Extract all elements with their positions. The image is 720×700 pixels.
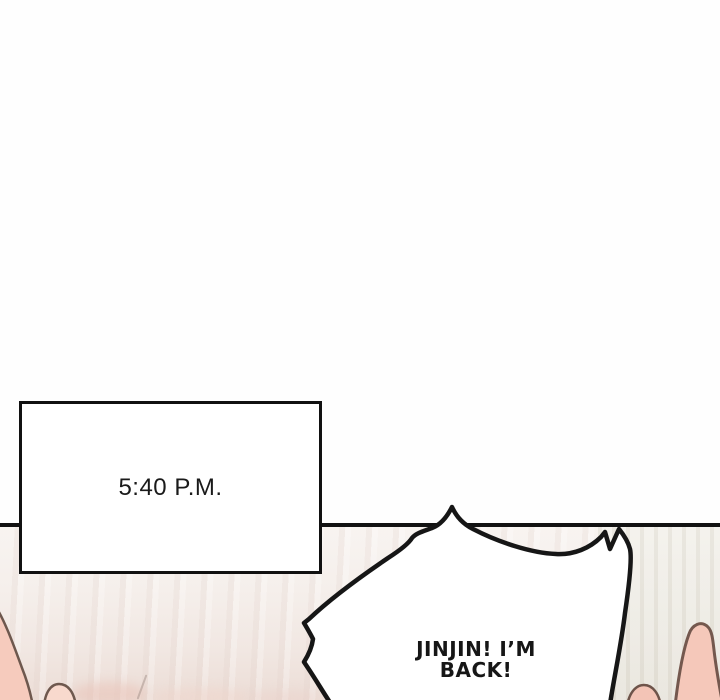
right-wall-background xyxy=(598,523,720,700)
speech-bubble-text: JINJIN! I’M BACK! xyxy=(416,639,536,681)
time-caption-box: 5:40 P.M. xyxy=(19,401,322,574)
time-caption-text: 5:40 P.M. xyxy=(118,474,222,502)
speech-line-2: BACK! xyxy=(416,660,536,681)
speech-line-1: JINJIN! I’M xyxy=(416,639,536,660)
background-blur-blob xyxy=(248,691,318,700)
background-blur-blob xyxy=(72,682,146,700)
comic-panel: 5:40 P.M. JINJIN! I’M BACK! xyxy=(0,0,720,700)
background-blur-blob xyxy=(152,688,248,700)
